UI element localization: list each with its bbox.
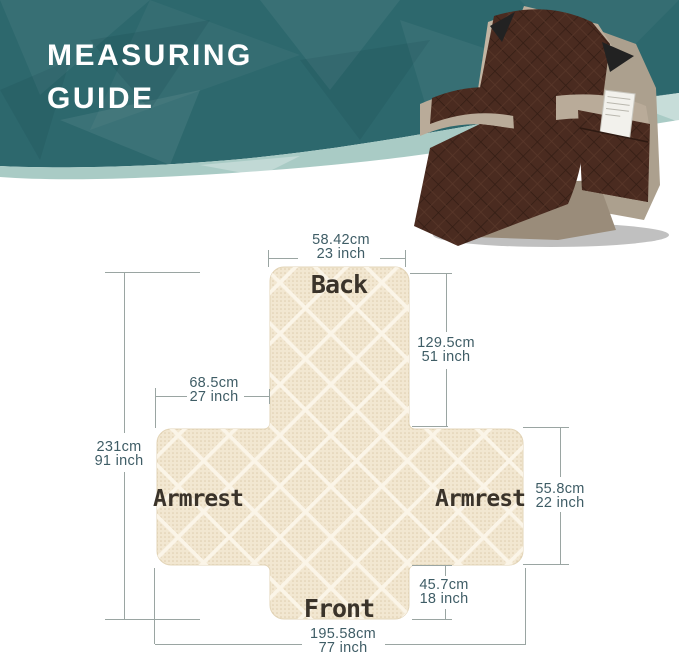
extension-line xyxy=(154,568,155,644)
dimension-line xyxy=(445,566,446,576)
dimension-tick xyxy=(105,272,200,273)
dimension-tick xyxy=(412,426,448,427)
dimension-tick xyxy=(105,619,200,620)
dimension-line xyxy=(268,258,298,259)
dimension-line xyxy=(446,369,447,426)
dimension-tick xyxy=(268,250,269,267)
cover-cross-diagram xyxy=(0,0,679,655)
dimension-line xyxy=(156,396,187,397)
dim-back-length: 129.5cm 51 inch xyxy=(417,336,475,364)
measuring-guide-infographic: MEASURING GUIDE Back Armrest Armrest Fro… xyxy=(0,0,679,655)
dimension-line xyxy=(385,644,526,645)
dimension-line xyxy=(380,258,406,259)
dimension-line xyxy=(445,609,446,619)
label-armrest-right-section: Armrest xyxy=(435,486,525,512)
dimension-tick xyxy=(412,619,452,620)
dimension-line xyxy=(560,428,561,477)
dim-front-height: 45.7cm 18 inch xyxy=(419,578,468,606)
dimension-line xyxy=(560,512,561,564)
dim-total-width: 195.58cm 77 inch xyxy=(310,627,376,655)
dim-total-length: 231cm 91 inch xyxy=(95,440,144,468)
extension-line xyxy=(525,568,526,644)
dimension-tick xyxy=(523,564,569,565)
dimension-tick xyxy=(155,388,156,428)
dimension-line xyxy=(124,472,125,619)
dim-top-width: 58.42cm 23 inch xyxy=(312,233,370,261)
dimension-line xyxy=(446,274,447,332)
label-front-section: Front xyxy=(304,594,374,623)
cover-fabric-shape xyxy=(157,267,523,619)
dimension-tick xyxy=(405,250,406,267)
dimension-line xyxy=(244,396,270,397)
dimension-tick xyxy=(412,565,452,566)
dim-armrest-height: 55.8cm 22 inch xyxy=(535,482,584,510)
dimension-tick xyxy=(523,427,569,428)
label-armrest-left-section: Armrest xyxy=(153,486,243,512)
label-back-section: Back xyxy=(311,270,367,299)
dimension-line xyxy=(124,273,125,433)
dim-armrest-width: 68.5cm 27 inch xyxy=(189,376,238,404)
dimension-line xyxy=(155,644,302,645)
dimension-tick xyxy=(269,389,270,404)
